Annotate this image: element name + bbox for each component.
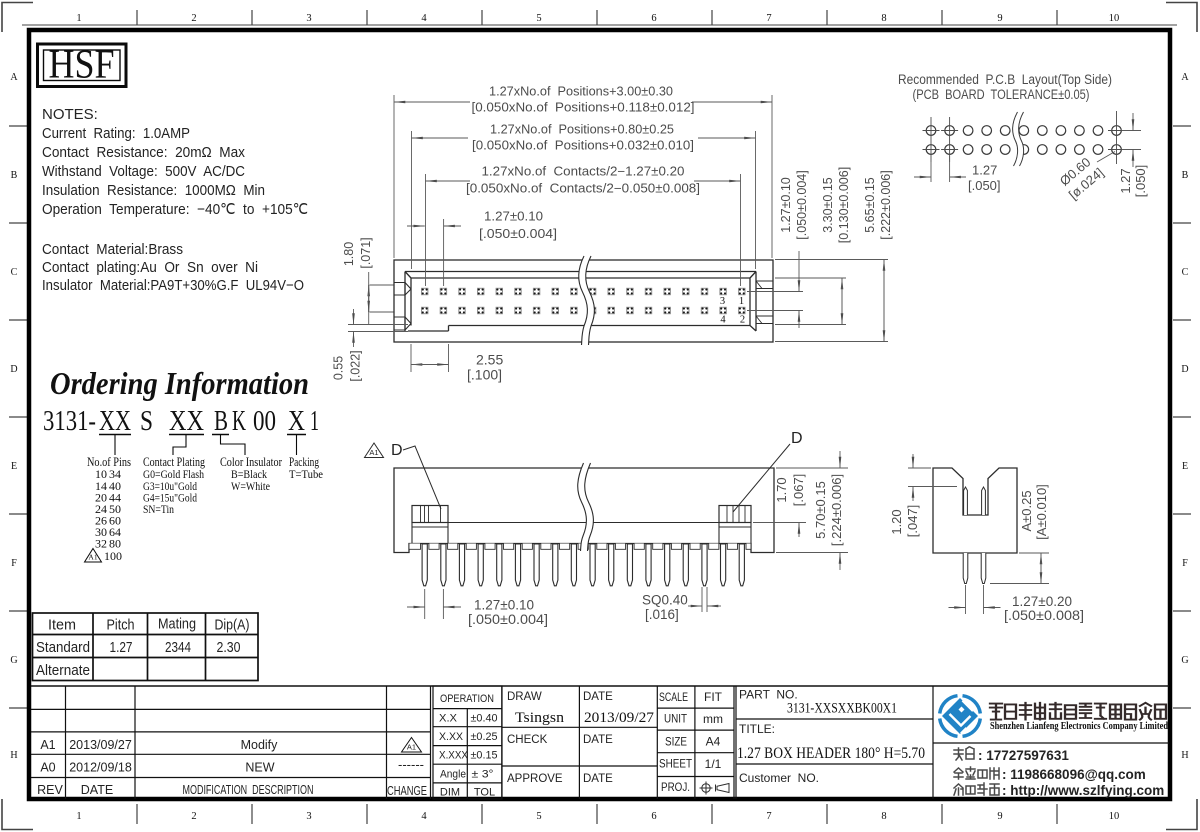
svg-text:DIM: DIM — [440, 787, 460, 799]
svg-text:C: C — [11, 267, 18, 278]
svg-text:3131-: 3131- — [43, 406, 96, 437]
svg-text:NOTES:: NOTES: — [42, 106, 98, 123]
svg-text:Modify: Modify — [241, 738, 279, 752]
svg-text:5.65±0.15: 5.65±0.15 — [863, 177, 877, 233]
svg-text:±0.40: ±0.40 — [471, 713, 498, 725]
svg-text:D: D — [10, 364, 17, 375]
svg-text:[.050±0.004]: [.050±0.004] — [479, 227, 557, 241]
svg-text:[.022]: [.022] — [349, 350, 363, 381]
svg-text:[.047]: [.047] — [905, 505, 920, 538]
svg-text:G: G — [10, 655, 17, 666]
svg-text:2013/09/27: 2013/09/27 — [584, 710, 655, 726]
svg-text:10: 10 — [1109, 811, 1120, 822]
svg-text:Recommended P.C.B Layout(Top: Recommended P.C.B Layout(Top Side) — [898, 72, 1112, 87]
svg-text:Tsingsn: Tsingsn — [515, 710, 565, 726]
svg-text:A±0.25: A±0.25 — [1019, 490, 1034, 531]
svg-text:X.X: X.X — [439, 713, 458, 725]
svg-text:1.27xNo.of Positions+3.00±0.3: 1.27xNo.of Positions+3.00±0.30 — [489, 85, 673, 99]
svg-text:5.70±0.15: 5.70±0.15 — [813, 481, 828, 539]
svg-text:100: 100 — [104, 549, 122, 563]
svg-text:: 1198668096@qq.com: : 1198668096@qq.com — [1002, 767, 1146, 782]
svg-text:A4: A4 — [706, 735, 721, 749]
svg-text:2.30: 2.30 — [217, 640, 241, 656]
svg-text:PROJ.: PROJ. — [661, 780, 690, 794]
svg-text:H: H — [1181, 750, 1188, 761]
svg-text:10: 10 — [1109, 13, 1120, 24]
svg-text:1: 1 — [310, 406, 319, 437]
svg-text:9: 9 — [997, 811, 1002, 822]
svg-text:K: K — [232, 406, 246, 437]
svg-text:mm: mm — [703, 712, 723, 726]
svg-text:Insulation Resistance: 1000M: Insulation Resistance: 1000MΩ Min — [42, 182, 265, 199]
svg-text:3.30±0.15: 3.30±0.15 — [821, 177, 835, 233]
svg-text:1.70: 1.70 — [774, 477, 789, 502]
svg-text:X.XX: X.XX — [439, 731, 464, 743]
svg-text:2344: 2344 — [165, 640, 191, 656]
svg-text:UNIT: UNIT — [664, 712, 688, 726]
svg-text:1.27: 1.27 — [110, 640, 133, 656]
svg-text:1.27±0.10: 1.27±0.10 — [484, 210, 543, 224]
svg-text:8: 8 — [881, 811, 886, 822]
svg-text:[.050]: [.050] — [968, 178, 1001, 193]
svg-text:±0.15: ±0.15 — [471, 750, 498, 762]
svg-text:0.55: 0.55 — [332, 356, 346, 380]
svg-text:G: G — [1181, 655, 1188, 666]
svg-text:A1: A1 — [407, 743, 416, 752]
svg-text:NEW: NEW — [245, 761, 274, 775]
svg-text:HSF: HSF — [49, 41, 115, 87]
svg-text:XX: XX — [99, 406, 131, 437]
svg-text:Contact plating:Au Or Sn o: Contact plating:Au Or Sn over Ni — [42, 259, 258, 276]
svg-text:XX: XX — [169, 406, 204, 437]
svg-text:A1: A1 — [40, 738, 55, 752]
svg-text:3: 3 — [306, 811, 311, 822]
svg-text:00: 00 — [253, 406, 276, 437]
svg-text:1.27: 1.27 — [972, 163, 997, 178]
svg-text:[.050±0.008]: [.050±0.008] — [1004, 608, 1084, 623]
svg-text:X.XXX: X.XXX — [439, 750, 469, 762]
svg-text:[.222±0.006]: [.222±0.006] — [879, 170, 893, 239]
svg-text:9: 9 — [997, 13, 1002, 24]
svg-text:TOL: TOL — [474, 787, 495, 799]
svg-text:1: 1 — [739, 296, 744, 307]
svg-text:5: 5 — [536, 811, 541, 822]
svg-text:B: B — [1182, 170, 1189, 181]
svg-text:E: E — [1182, 461, 1188, 472]
svg-text:D: D — [1181, 364, 1188, 375]
svg-text:2: 2 — [191, 13, 196, 24]
svg-text:T=Tube: T=Tube — [289, 467, 323, 481]
svg-text:DATE: DATE — [583, 691, 613, 703]
svg-text:PART NO.: PART NO. — [739, 688, 798, 702]
svg-text:B: B — [11, 170, 18, 181]
svg-text:D: D — [791, 430, 803, 447]
svg-text:[.050±0.004]: [.050±0.004] — [468, 612, 548, 627]
svg-text:S: S — [140, 406, 153, 437]
svg-text:3131-XXSXXBK00X1: 3131-XXSXXBK00X1 — [787, 701, 897, 717]
svg-text:[0.130±0.006]: [0.130±0.006] — [837, 167, 851, 243]
svg-text:FIT: FIT — [704, 690, 723, 704]
svg-text:: http://www.szlfying.com: : http://www.szlfying.com — [1002, 783, 1164, 798]
svg-text:[0.050xNo.of Contacts/2−0.050: [0.050xNo.of Contacts/2−0.050±0.008] — [466, 182, 700, 196]
svg-text:[.067]: [.067] — [791, 474, 806, 507]
svg-text:6: 6 — [651, 13, 656, 24]
svg-text:DRAW: DRAW — [507, 691, 542, 703]
svg-text:Customer NO.: Customer NO. — [739, 771, 819, 785]
svg-text:1.27±0.10: 1.27±0.10 — [779, 177, 793, 233]
svg-text:Contact Material:Brass: Contact Material:Brass — [42, 241, 183, 258]
svg-text:[0.050xNo.of Positions+0.118±: [0.050xNo.of Positions+0.118±0.012] — [472, 101, 695, 115]
svg-text:CHANGE: CHANGE — [387, 784, 427, 798]
svg-text:[A±0.010]: [A±0.010] — [1034, 484, 1049, 540]
svg-text:2: 2 — [191, 811, 196, 822]
svg-text:[.050]: [.050] — [1133, 165, 1148, 198]
svg-text:DATE: DATE — [583, 773, 613, 785]
svg-text:A1: A1 — [369, 448, 378, 457]
svg-text:E: E — [11, 461, 17, 472]
svg-text:Alternate: Alternate — [36, 663, 90, 679]
svg-text:1.27xNo.of Contacts/2−1.27±0.: 1.27xNo.of Contacts/2−1.27±0.20 — [482, 165, 685, 179]
svg-text:F: F — [11, 558, 17, 569]
svg-text:6: 6 — [651, 811, 656, 822]
svg-text:7: 7 — [766, 13, 771, 24]
svg-text:Ordering Information: Ordering Information — [50, 365, 309, 401]
svg-text:REV: REV — [37, 783, 63, 797]
svg-text:[.050±0.004]: [.050±0.004] — [795, 170, 809, 239]
svg-text:Withstand Voltage: 500V AC/: Withstand Voltage: 500V AC/DC — [42, 163, 245, 180]
svg-text:APPROVE: APPROVE — [507, 773, 563, 785]
svg-text:Operation Temperature: −40℃: Operation Temperature: −40℃ to +105℃ — [42, 201, 308, 218]
svg-text:A: A — [10, 72, 18, 83]
svg-text:[.100]: [.100] — [467, 367, 502, 383]
svg-text:A0: A0 — [40, 761, 55, 775]
svg-text:4: 4 — [421, 811, 427, 822]
svg-text:MODIFICATION DESCRIPTION: MODIFICATION DESCRIPTION — [183, 783, 314, 797]
svg-text:1.27±0.20: 1.27±0.20 — [1012, 594, 1072, 609]
svg-text:B: B — [214, 406, 228, 437]
svg-text:SQ0.40: SQ0.40 — [642, 593, 688, 608]
svg-text:TITLE:: TITLE: — [739, 722, 775, 736]
svg-text:1/1: 1/1 — [705, 757, 722, 771]
svg-text:± 3°: ± 3° — [472, 769, 494, 781]
svg-text:2: 2 — [740, 315, 745, 326]
svg-text:Pitch: Pitch — [107, 618, 135, 634]
svg-text:A1: A1 — [88, 553, 97, 562]
svg-text:DATE: DATE — [81, 783, 113, 797]
svg-text:3: 3 — [306, 13, 311, 24]
svg-text:1: 1 — [76, 13, 81, 24]
svg-text:5: 5 — [536, 13, 541, 24]
svg-text:8: 8 — [881, 13, 886, 24]
svg-text:SN=Tin: SN=Tin — [143, 502, 174, 516]
svg-text:[.224±0.006]: [.224±0.006] — [829, 474, 844, 546]
svg-text:3: 3 — [720, 296, 725, 307]
svg-text:2013/09/27: 2013/09/27 — [69, 738, 132, 752]
svg-text:±0.25: ±0.25 — [471, 731, 498, 743]
svg-text:2012/09/18: 2012/09/18 — [69, 761, 132, 775]
svg-text:Insulator Material:PA9T+30%G.: Insulator Material:PA9T+30%G.F UL94V−O — [42, 277, 304, 294]
svg-text:1.27 BOX HEADER 180° H=5.70: 1.27 BOX HEADER 180° H=5.70 — [737, 745, 925, 762]
svg-text:7: 7 — [766, 811, 771, 822]
svg-text:[0.050xNo.of Positions+0.032±: [0.050xNo.of Positions+0.032±0.010] — [472, 139, 694, 153]
svg-text:Contact Resistance: 20mΩ Ma: Contact Resistance: 20mΩ Max — [42, 144, 245, 161]
svg-text:DATE: DATE — [583, 734, 613, 746]
svg-text:1: 1 — [76, 811, 81, 822]
svg-text:[.071]: [.071] — [359, 237, 373, 268]
svg-text:4: 4 — [720, 315, 726, 326]
svg-text:Dip(A): Dip(A) — [215, 618, 250, 634]
svg-text:1.27: 1.27 — [1118, 168, 1133, 193]
svg-text:OPERATION: OPERATION — [440, 693, 494, 705]
svg-text:SIZE: SIZE — [665, 735, 687, 749]
svg-text:SCALE: SCALE — [659, 690, 688, 704]
svg-text:: 17727597631: : 17727597631 — [978, 748, 1069, 763]
svg-text:W=White: W=White — [231, 479, 270, 493]
svg-text:Mating: Mating — [158, 617, 196, 633]
svg-text:[.016]: [.016] — [645, 607, 679, 622]
svg-text:H: H — [10, 750, 17, 761]
svg-text:Standard: Standard — [36, 640, 90, 656]
svg-text:X: X — [288, 406, 305, 437]
svg-text:Shenzhen Lianfeng Electronics: Shenzhen Lianfeng Electronics Company Li… — [990, 721, 1168, 732]
svg-text:A: A — [1181, 72, 1189, 83]
svg-text:2.55: 2.55 — [476, 352, 503, 368]
svg-text:------: ------ — [398, 757, 424, 772]
svg-text:1.27xNo.of Positions+0.80±0.2: 1.27xNo.of Positions+0.80±0.25 — [490, 123, 674, 137]
svg-text:1.20: 1.20 — [889, 509, 904, 534]
svg-text:F: F — [1182, 558, 1188, 569]
svg-text:CHECK: CHECK — [507, 734, 548, 746]
svg-text:D: D — [391, 442, 403, 459]
svg-text:Angle: Angle — [440, 769, 466, 781]
svg-text:1.27±0.10: 1.27±0.10 — [474, 598, 534, 613]
svg-text:Current Rating: 1.0AMP: Current Rating: 1.0AMP — [42, 125, 190, 142]
svg-text:1.80: 1.80 — [342, 242, 356, 266]
svg-text:(PCB BOARD TOLERANCE±0.05): (PCB BOARD TOLERANCE±0.05) — [913, 87, 1090, 102]
svg-text:C: C — [1182, 267, 1189, 278]
svg-text:SHEET: SHEET — [659, 757, 693, 771]
svg-text:4: 4 — [421, 13, 427, 24]
svg-text:Item: Item — [48, 618, 76, 634]
